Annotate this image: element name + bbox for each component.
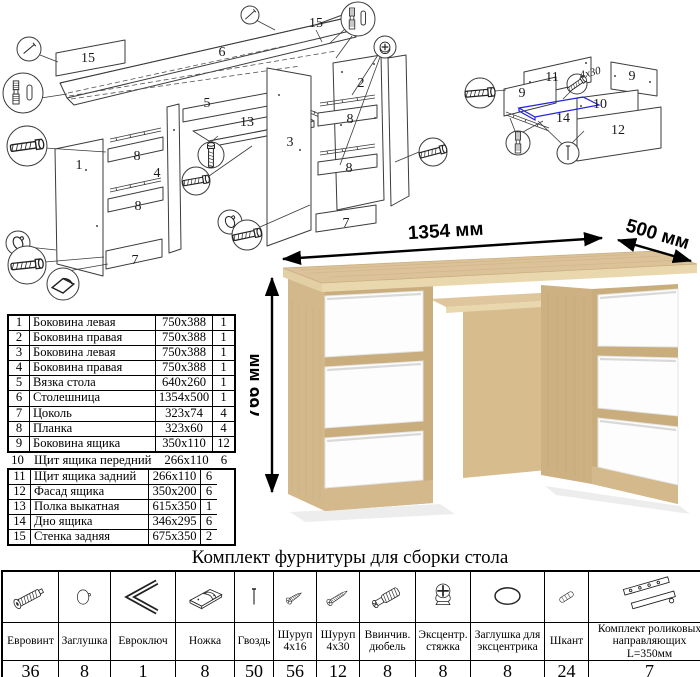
parts-cell-name: Боковина правая [30, 331, 156, 346]
hardware-item-name: Заглушка для эксцентрика [471, 623, 545, 661]
parts-row-11: 11Щит ящика задний266х1106 [9, 470, 234, 485]
desk-center-panel [463, 301, 547, 478]
cap-icon [59, 571, 111, 623]
parts-row-8: 8Планка323х604 [9, 422, 234, 437]
part-label-8: 8 [346, 161, 353, 176]
hardware-item-name: Шкант [545, 623, 589, 661]
parts-table-upper: 1Боковина левая750х38812Боковина правая7… [7, 314, 236, 453]
part-label-4: 4 [154, 166, 161, 181]
parts-cell-qty: 6 [201, 470, 217, 485]
part-label-15: 15 [81, 51, 95, 66]
exploded-diagram-drawer: 11 9 9 10 14 12 4х30 [450, 35, 700, 200]
parts-cell-name: Щит ящика задний [31, 470, 149, 485]
wood-dowel-icon [545, 571, 589, 623]
parts-cell-num: 15 [9, 530, 31, 544]
nail-callout [17, 37, 41, 61]
parts-cell-num: 4 [9, 361, 30, 376]
parts-cell-name: Боковина ящика [30, 437, 156, 451]
nail-callout [557, 142, 579, 164]
hardware-item-qty: 50 [235, 660, 274, 677]
parts-table-middle-row: 10Щит ящика передний266х1106 [7, 453, 236, 468]
drawer-slides-icon [589, 571, 700, 623]
parts-cell-size: 266х110 [149, 470, 201, 485]
parts-cell-name: Фасад ящика [31, 485, 149, 500]
part-label-3: 3 [287, 135, 294, 150]
parts-cell-num: 11 [9, 470, 31, 485]
parts-cell-qty: 6 [201, 485, 217, 500]
parts-cell-name: Дно ящика [31, 515, 149, 530]
parts-cell-qty: 1 [213, 346, 234, 361]
part-label-8: 8 [134, 149, 141, 164]
part-label-9: 9 [629, 69, 636, 84]
parts-cell-qty: 4 [213, 422, 234, 437]
parts-cell-qty: 1 [213, 391, 234, 406]
parts-cell-name: Боковина правая [30, 361, 156, 376]
parts-row-6: 6Столешница1354х5001 [9, 391, 234, 406]
width-dimension-label: 1354 мм [407, 219, 484, 245]
parts-row-12: 12Фасад ящика350х2006 [9, 485, 234, 500]
euro-screw-callout [465, 78, 496, 108]
parts-cell-qty: 1 [213, 316, 234, 331]
hardware-item-name: Евроключ [111, 623, 176, 661]
euro-screw-callout [7, 126, 47, 166]
parts-cell-num: 9 [9, 437, 30, 451]
euro-screw-callout [8, 246, 46, 284]
part-label-5: 5 [204, 96, 211, 111]
parts-cell-size: 615х350 [149, 500, 201, 515]
hardware-item-name: Заглушка [59, 623, 111, 661]
parts-cell-size: 346х295 [149, 515, 201, 530]
hardware-item-qty: 36 [2, 660, 59, 677]
nail-callout [241, 6, 259, 24]
parts-cell-name: Боковина левая [30, 316, 156, 331]
parts-cell-size: 323х60 [156, 422, 213, 437]
parts-table-lower: 11Щит ящика задний266х110612Фасад ящика3… [7, 468, 236, 546]
hardware-item-name: Эксцентр. стяжка [416, 623, 471, 661]
hardware-names-row: ЕвровинтЗаглушкаЕвроключНожкаГвоздьШуруп… [2, 623, 700, 661]
drawer-front [325, 291, 423, 488]
hardware-item-name: Ввинчив. дюбель [360, 623, 416, 661]
assembly-instruction-sheet: 15 15 6 5 13 1 4 8 8 7 3 2 8 8 7 [0, 0, 700, 677]
height-dimension-label: 766 мм [250, 353, 264, 418]
parts-cell-qty: 6 [201, 515, 217, 530]
part-label-7: 7 [132, 253, 139, 268]
parts-cell-size: 350х200 [149, 485, 201, 500]
hardware-item-name: Евровинт [2, 623, 59, 661]
hardware-item-qty: 24 [545, 660, 589, 677]
parts-row-15: 15Стенка задняя675х3502 [9, 530, 234, 544]
part-label-1: 1 [76, 158, 83, 173]
hardware-item-name: Шуруп 4х16 [274, 623, 317, 661]
part-label-13: 13 [240, 115, 254, 130]
desktop [283, 251, 697, 292]
part-label-8: 8 [347, 112, 354, 127]
hardware-qty-row: 36818505612888247 [2, 660, 700, 677]
euro-screw-icon [2, 571, 59, 623]
screw-large-icon [317, 571, 360, 623]
parts-row-13: 13Полка выкатная615х3501 [9, 500, 234, 515]
parts-row-2: 2Боковина правая750х3881 [9, 331, 234, 346]
part-label-6: 6 [219, 45, 226, 60]
parts-cell-size: 350х110 [156, 437, 213, 451]
euro-screw-callout [419, 138, 448, 166]
parts-row-10: 10Щит ящика передний266х1106 [7, 453, 236, 468]
part-label-9: 9 [519, 86, 526, 101]
parts-row-4: 4Боковина правая750х3881 [9, 361, 234, 376]
foot-icon [176, 571, 235, 623]
hardware-item-qty: 12 [317, 660, 360, 677]
parts-cell-name: Полка выкатная [31, 500, 149, 515]
cam-lock-callout [374, 36, 396, 58]
parts-cell-name: Вязка стола [30, 376, 156, 391]
parts-cell-name: Щит ящика передний [28, 453, 158, 468]
parts-cell-size: 750х388 [156, 346, 213, 361]
cam-cap-icon [471, 571, 545, 623]
hardware-item-qty: 56 [274, 660, 317, 677]
part-label-8: 8 [135, 199, 142, 214]
drawer-front [598, 289, 678, 485]
hex-key-icon [111, 571, 176, 623]
euro-screw-callout [182, 167, 210, 195]
hardware-item-qty: 7 [589, 660, 700, 677]
screw-small-icon [274, 571, 317, 623]
parts-cell-name: Боковина левая [30, 346, 156, 361]
parts-cell-qty: 1 [213, 361, 234, 376]
nail-icon [235, 571, 274, 623]
hardware-item-qty: 8 [176, 660, 235, 677]
parts-cell-qty: 1 [201, 500, 217, 515]
parts-cell-size: 640х260 [156, 376, 213, 391]
dowel-callout [3, 73, 43, 113]
parts-row-14: 14Дно ящика346х2956 [9, 515, 234, 530]
parts-cell-qty: 4 [213, 407, 234, 422]
parts-cell-name: Стенка задняя [31, 530, 149, 544]
parts-cell-qty: 6 [215, 453, 233, 468]
hardware-item-qty: 8 [416, 660, 471, 677]
parts-list: 1Боковина левая750х38812Боковина правая7… [7, 314, 236, 546]
parts-row-3: 3Боковина левая750х3881 [9, 346, 234, 361]
hardware-item-qty: 8 [471, 660, 545, 677]
dowel-callout [506, 131, 530, 155]
part-label-2: 2 [358, 76, 365, 91]
parts-cell-num: 3 [9, 346, 30, 361]
parts-cell-num: 1 [9, 316, 30, 331]
parts-cell-size: 266х110 [158, 453, 215, 468]
parts-cell-size: 323х74 [156, 407, 213, 422]
cam-lock-icon [416, 571, 471, 623]
hardware-item-name: Комплект роликовых направляющих L=350мм [589, 623, 700, 661]
part-label-11: 11 [545, 70, 558, 85]
parts-row-5: 5Вязка стола640х2601 [9, 376, 234, 391]
parts-cell-num: 12 [9, 485, 31, 500]
euro-screw-callout [198, 142, 224, 168]
hardware-item-qty: 1 [111, 660, 176, 677]
dowel-bolt-icon [360, 571, 416, 623]
parts-cell-qty: 1 [213, 331, 234, 346]
hardware-item-name: Шуруп 4х30 [317, 623, 360, 661]
part-label-10: 10 [593, 97, 607, 112]
part-label-12: 12 [611, 123, 625, 138]
parts-cell-qty: 2 [201, 530, 217, 544]
parts-cell-size: 750х388 [156, 361, 213, 376]
parts-cell-num: 7 [9, 407, 30, 422]
parts-row-1: 1Боковина левая750х3881 [9, 316, 234, 331]
parts-cell-name: Цоколь [30, 407, 156, 422]
hardware-item-qty: 8 [360, 660, 416, 677]
hardware-kit-title: Комплект фурнитуры для сборки стола [1, 546, 699, 569]
hardware-item-name: Гвоздь [235, 623, 274, 661]
right-pedestal [541, 284, 678, 504]
parts-cell-num: 14 [9, 515, 31, 530]
hardware-kit-table: ЕвровинтЗаглушкаЕвроключНожкаГвоздьШуруп… [1, 570, 700, 677]
hardware-item-name: Ножка [176, 623, 235, 661]
parts-cell-num: 13 [9, 500, 31, 515]
parts-cell-num: 6 [9, 391, 30, 406]
parts-cell-name: Столешница [30, 391, 156, 406]
parts-cell-num: 5 [9, 376, 30, 391]
hardware-kit-section: Комплект фурнитуры для сборки стола Евро… [1, 546, 699, 677]
depth-dimension-label: 500 мм [623, 215, 691, 254]
parts-cell-num: 10 [7, 453, 28, 468]
left-pedestal [288, 277, 433, 511]
hardware-item-qty: 8 [59, 660, 111, 677]
parts-cell-qty: 1 [213, 376, 234, 391]
dowel-callout [341, 2, 375, 36]
part-label-15: 15 [309, 16, 323, 31]
desk-photo-render: 1354 мм 500 мм 766 мм [250, 215, 700, 555]
parts-cell-size: 750х388 [156, 331, 213, 346]
parts-cell-num: 8 [9, 422, 30, 437]
parts-cell-name: Планка [30, 422, 156, 437]
part-label-14: 14 [556, 111, 570, 126]
foot-callout [47, 268, 79, 300]
hardware-icons-row [2, 571, 700, 623]
parts-cell-size: 750х388 [156, 316, 213, 331]
parts-cell-size: 675х350 [149, 530, 201, 544]
parts-cell-num: 2 [9, 331, 30, 346]
parts-cell-size: 1354х500 [156, 391, 213, 406]
parts-cell-qty: 12 [213, 437, 234, 451]
parts-row-7: 7Цоколь323х744 [9, 407, 234, 422]
parts-row-9: 9Боковина ящика350х11012 [9, 437, 234, 451]
